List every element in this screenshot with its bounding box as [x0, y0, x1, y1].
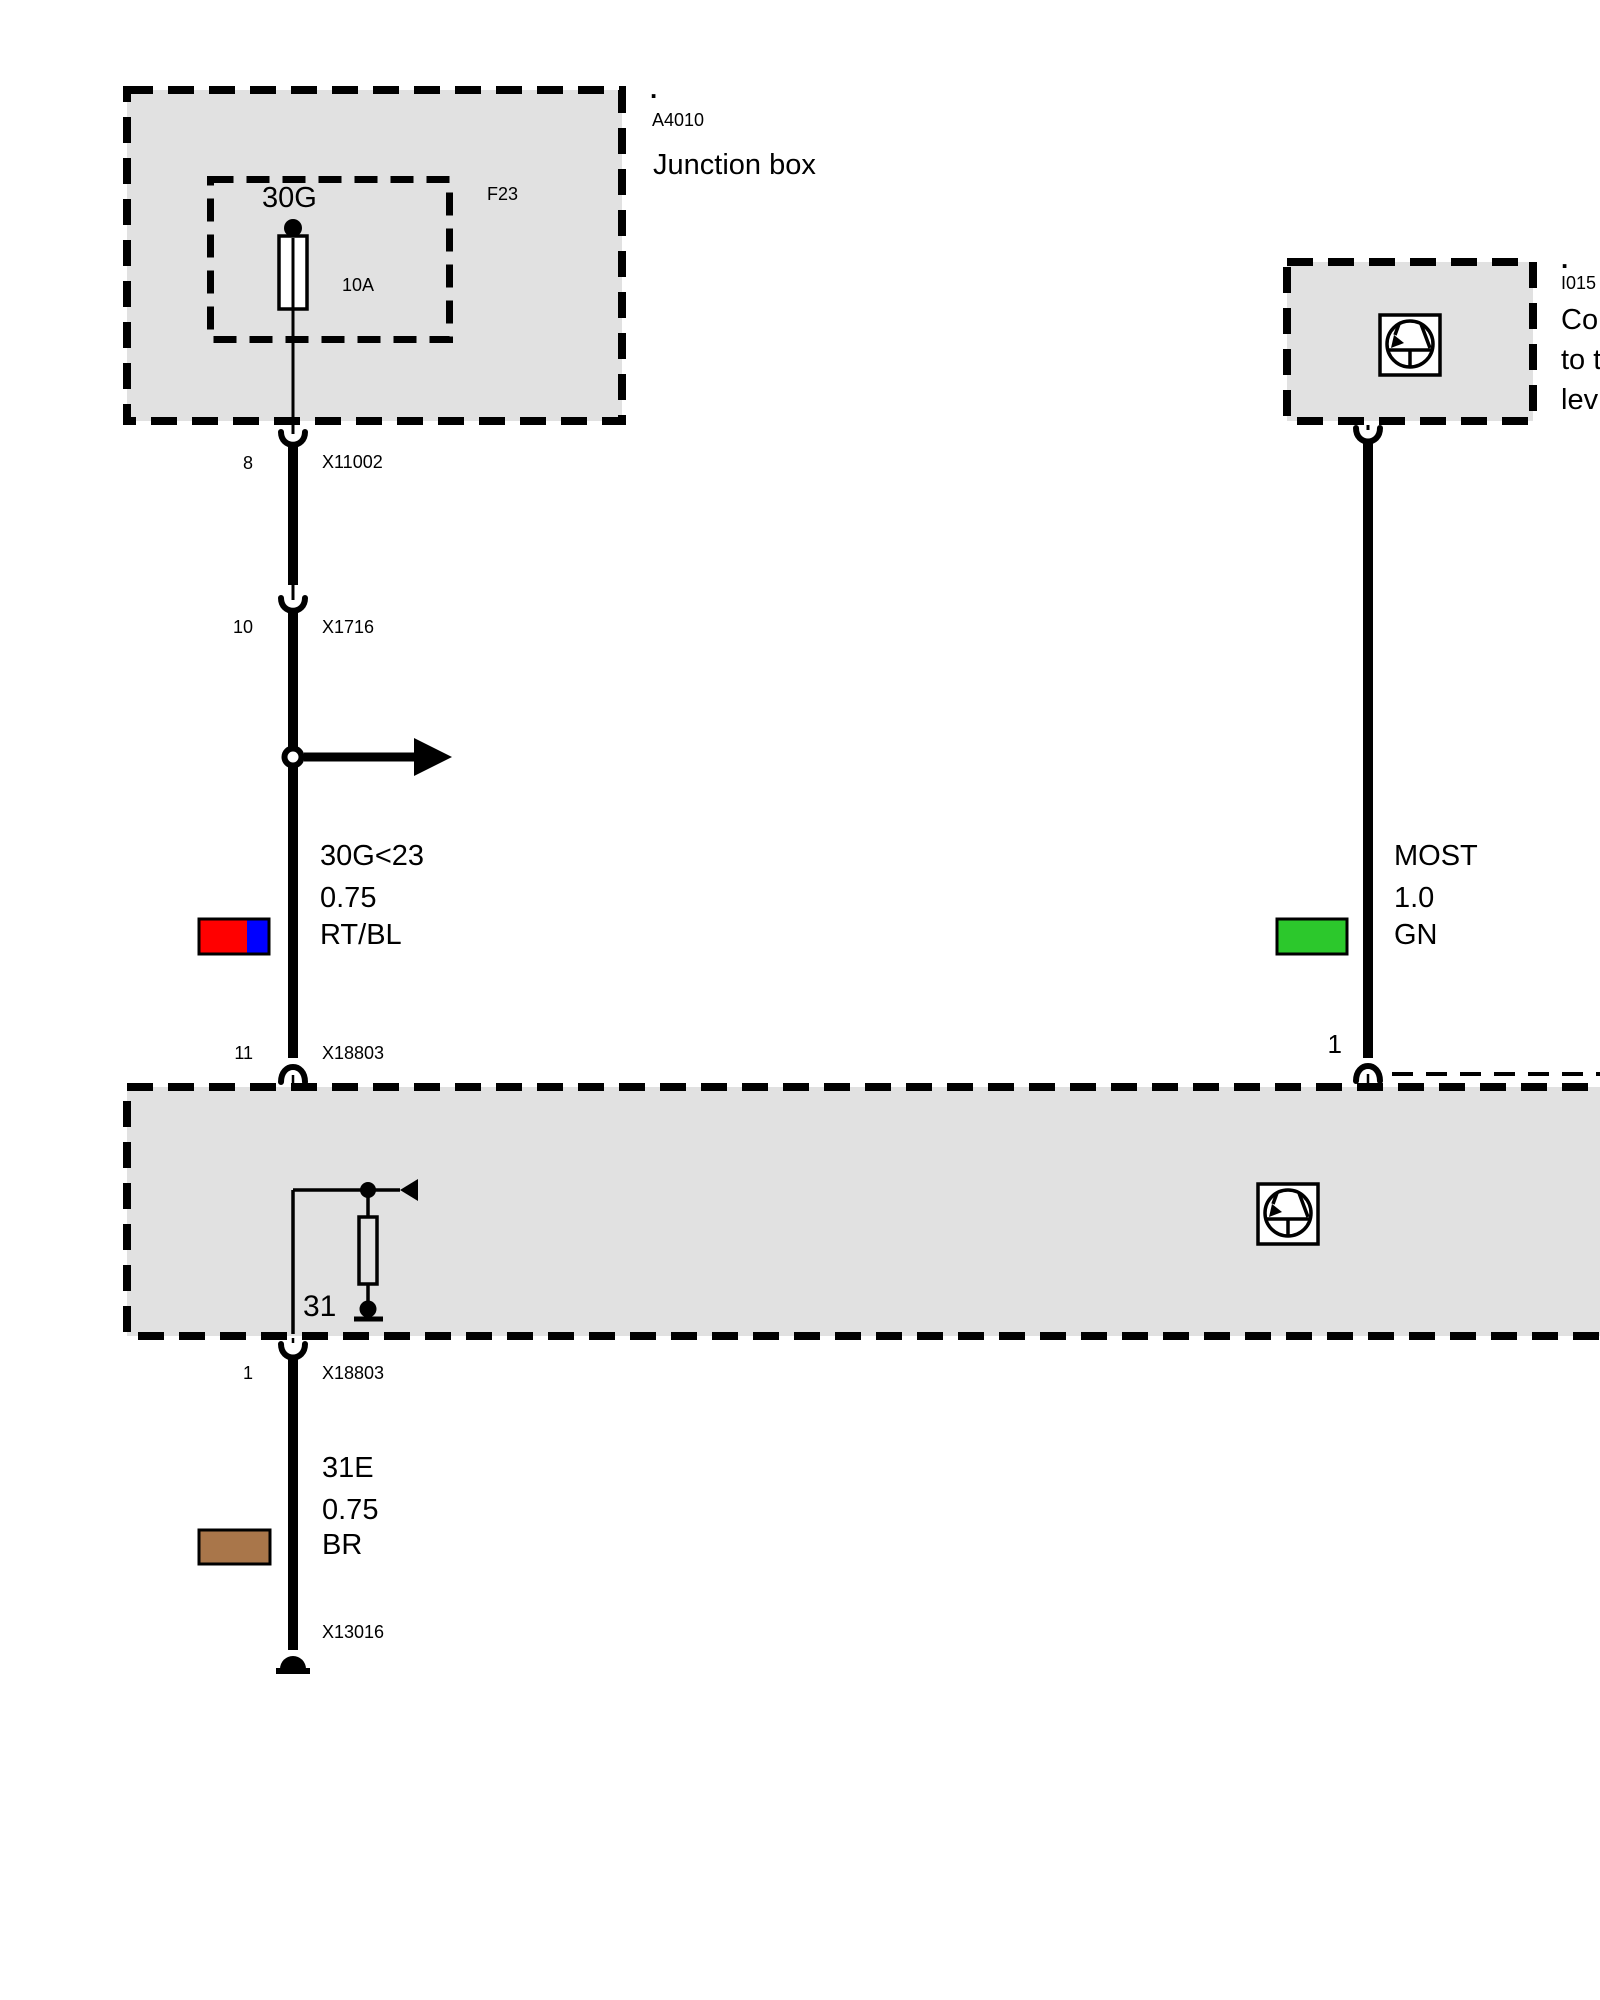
wire-bottom-gauge: 0.75 [322, 1496, 378, 1525]
fuse-rating-label: 10A [342, 276, 374, 294]
right-module-desc-1: Co [1561, 306, 1598, 335]
wire-bottom-circuit: 31E [322, 1454, 374, 1483]
ground-terminal-dome [280, 1656, 306, 1669]
pin-1-right-label: 1 [1280, 1031, 1342, 1057]
internal-ground-dot [360, 1301, 377, 1318]
bottom-module-box [127, 1087, 1600, 1336]
swatch-brown [199, 1530, 270, 1564]
fuse-name-label: F23 [487, 185, 518, 203]
jbox-marker: . [650, 76, 657, 102]
wire-bottom-color: BR [322, 1531, 362, 1560]
connector-x18803-bottom: X18803 [322, 1364, 384, 1382]
jbox-code: A4010 [652, 111, 704, 129]
wire-left-circuit: 30G<23 [320, 842, 424, 871]
internal-node [360, 1182, 376, 1198]
wiring-diagram-page: . A4010 Junction box 30G F23 10A . I015 … [0, 0, 1600, 2000]
right-module-desc-2: to t [1561, 346, 1600, 375]
swatch-red [199, 919, 247, 954]
pin-8-label: 8 [195, 454, 253, 472]
junction-box [127, 90, 622, 421]
swatch-green [1277, 919, 1347, 954]
right-module-code: I015 [1561, 274, 1596, 292]
control-unit-icon-bottom [1258, 1184, 1318, 1244]
connector-socket-x18803-bottom [281, 1344, 305, 1358]
wire-left-color: RT/BL [320, 921, 402, 950]
wire-right-color: GN [1394, 921, 1438, 950]
diagram-line-art [0, 0, 1600, 2000]
control-unit-icon [1380, 315, 1440, 375]
pin-10-label: 10 [195, 618, 253, 636]
pin-1-bottom-label: 1 [195, 1364, 253, 1382]
branch-arrow-icon [414, 738, 452, 776]
connector-x11002: X11002 [322, 453, 383, 471]
swatch-blue [247, 919, 269, 954]
wire-right-circuit: MOST [1394, 842, 1478, 871]
wire-left-gauge: 0.75 [320, 884, 376, 913]
ground-31-label: 31 [303, 1292, 336, 1322]
branch-node [285, 749, 302, 766]
jbox-title: Junction box [653, 151, 816, 180]
connector-x1716: X1716 [322, 618, 374, 636]
wire-right-gauge: 1.0 [1394, 884, 1434, 913]
connector-x13016: X13016 [322, 1623, 384, 1641]
fuse-circuit-label: 30G [262, 184, 317, 213]
right-module-desc-3: lev [1561, 386, 1598, 415]
connector-socket-right [1356, 428, 1380, 442]
connector-x18803-top: X18803 [322, 1044, 384, 1062]
pin-11-label: 11 [195, 1044, 253, 1062]
right-module-marker: . [1561, 246, 1568, 272]
